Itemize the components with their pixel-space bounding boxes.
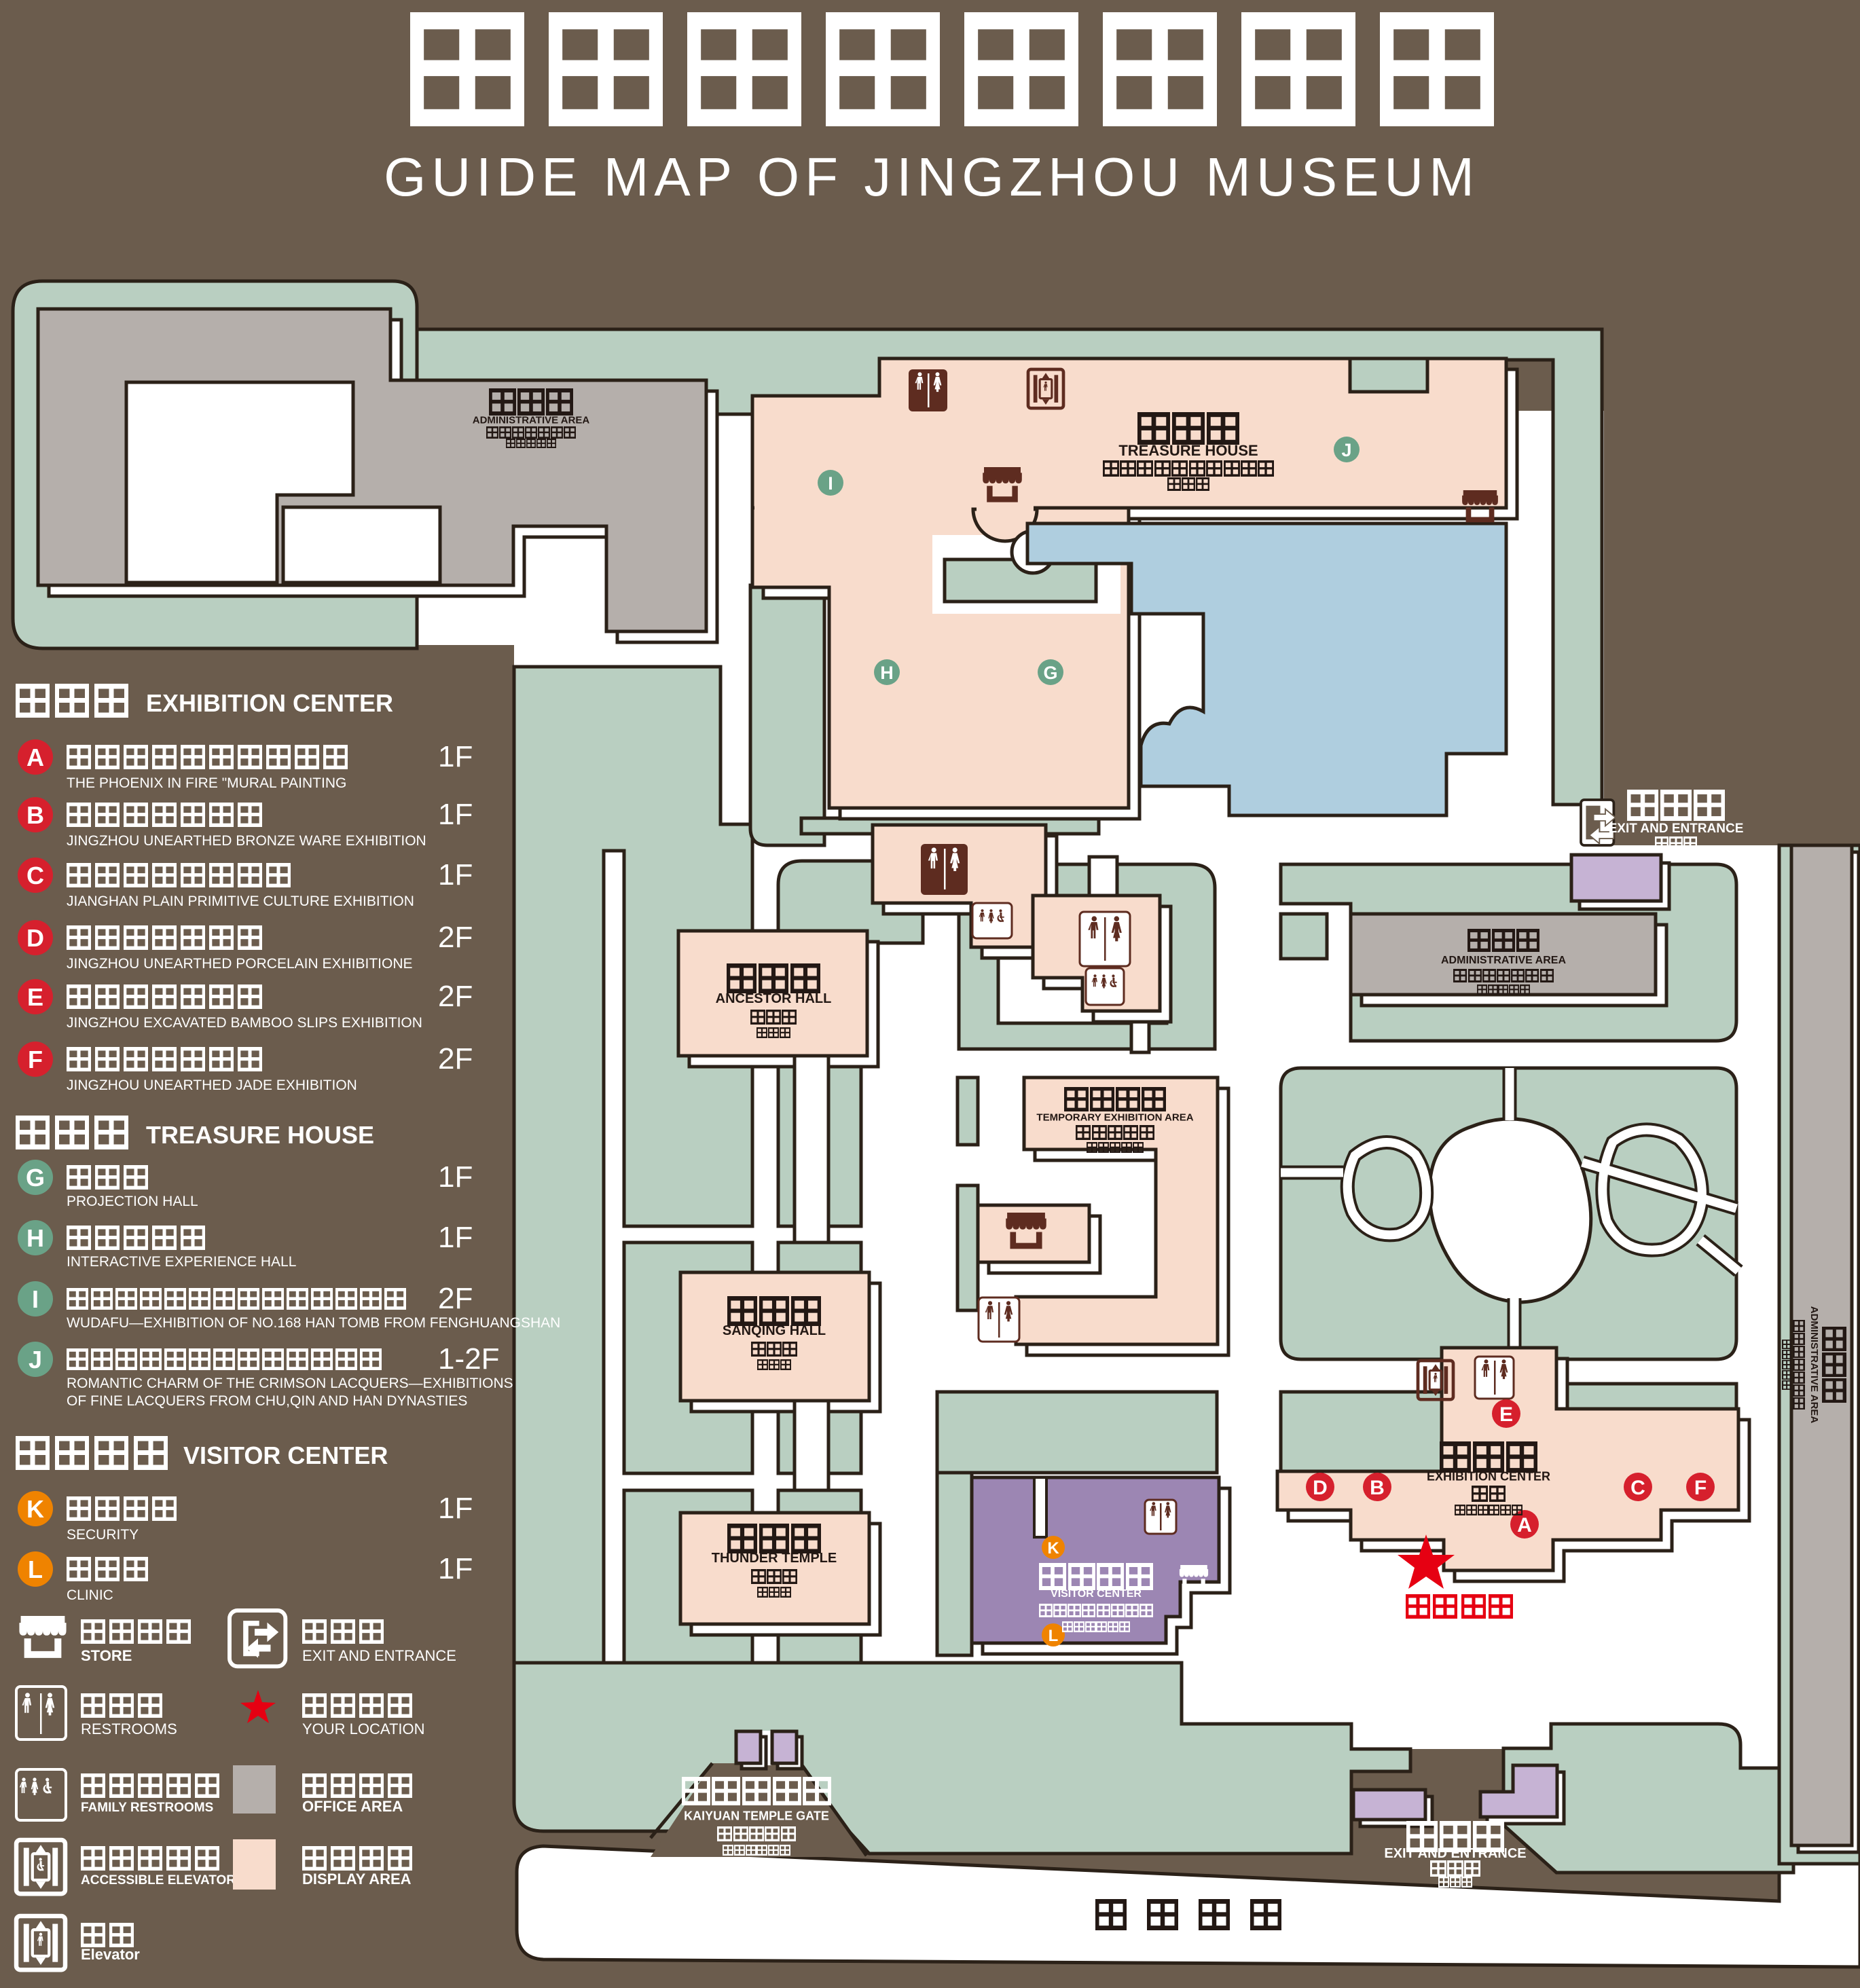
- svg-text:1F: 1F: [438, 1160, 473, 1194]
- svg-text:1F: 1F: [438, 1492, 473, 1525]
- svg-text:2F: 2F: [438, 921, 473, 954]
- svg-text:2F: 2F: [438, 980, 473, 1013]
- svg-text:D: D: [1313, 1477, 1328, 1499]
- svg-text:JINGZHOU UNEARTHED JADE EXHIBI: JINGZHOU UNEARTHED JADE EXHIBITION: [67, 1078, 357, 1093]
- svg-text:STORE: STORE: [81, 1647, 132, 1664]
- svg-text:EXIT AND ENTRANCE: EXIT AND ENTRANCE: [1384, 1846, 1526, 1861]
- svg-text:1F: 1F: [438, 1552, 473, 1585]
- svg-text:TEMPORARY EXHIBITION AREA: TEMPORARY EXHIBITION AREA: [1036, 1111, 1193, 1123]
- svg-text:VISITOR CENTER: VISITOR CENTER: [183, 1441, 388, 1469]
- svg-text:ROMANTIC CHARM OF THE CRIMSON: ROMANTIC CHARM OF THE CRIMSON LACQUERS—E…: [67, 1376, 513, 1391]
- svg-text:L: L: [28, 1556, 43, 1583]
- svg-text:THUNDER TEMPLE: THUNDER TEMPLE: [712, 1551, 837, 1566]
- svg-text:L: L: [1048, 1627, 1059, 1645]
- svg-text:J: J: [29, 1346, 42, 1374]
- svg-text:K: K: [1047, 1539, 1059, 1558]
- svg-text:YOUR LOCATION: YOUR LOCATION: [302, 1720, 425, 1737]
- svg-text:D: D: [26, 924, 44, 952]
- svg-text:I: I: [32, 1285, 39, 1313]
- svg-text:ADMINISTRATIVE AREA: ADMINISTRATIVE AREA: [1441, 955, 1566, 966]
- svg-text:DISPLAY AREA: DISPLAY AREA: [302, 1871, 412, 1888]
- svg-text:TREASURE HOUSE: TREASURE HOUSE: [1118, 442, 1258, 459]
- svg-text:KAIYUAN TEMPLE GATE: KAIYUAN TEMPLE GATE: [684, 1809, 829, 1822]
- svg-text:J: J: [1341, 440, 1351, 460]
- svg-text:ACCESSIBLE ELEVATOR: ACCESSIBLE ELEVATOR: [81, 1873, 236, 1888]
- svg-text:JINGZHOU UNEARTHED BRONZE WARE: JINGZHOU UNEARTHED BRONZE WARE EXHIBITIO…: [67, 833, 426, 849]
- svg-text:A: A: [1517, 1514, 1532, 1536]
- svg-text:C: C: [1630, 1477, 1645, 1499]
- svg-text:SECURITY: SECURITY: [67, 1527, 139, 1543]
- svg-text:TREASURE HOUSE: TREASURE HOUSE: [146, 1121, 374, 1149]
- svg-text:THE PHOENIX IN FIRE "MURAL PAI: THE PHOENIX IN FIRE "MURAL PAINTING: [67, 775, 346, 791]
- svg-text:EXHIBITION CENTER: EXHIBITION CENTER: [1427, 1469, 1550, 1483]
- svg-text:B: B: [1370, 1477, 1385, 1499]
- svg-text:OFFICE AREA: OFFICE AREA: [302, 1798, 403, 1815]
- svg-text:2F: 2F: [438, 1042, 473, 1075]
- svg-text:VISITOR CENTER: VISITOR CENTER: [1051, 1588, 1142, 1600]
- svg-text:1F: 1F: [438, 798, 473, 831]
- svg-text:F: F: [28, 1046, 43, 1073]
- svg-text:JIANGHAN PLAIN PRIMITIVE CULTU: JIANGHAN PLAIN PRIMITIVE CULTURE EXHIBIT…: [67, 894, 414, 909]
- svg-text:EXHIBITION CENTER: EXHIBITION CENTER: [146, 689, 393, 717]
- svg-text:SANQING HALL: SANQING HALL: [723, 1323, 826, 1338]
- svg-text:PROJECTION HALL: PROJECTION HALL: [67, 1194, 198, 1209]
- svg-text:1F: 1F: [438, 740, 473, 773]
- svg-text:Elevator: Elevator: [81, 1946, 140, 1963]
- svg-text:G: G: [26, 1164, 45, 1192]
- svg-text:INTERACTIVE EXPERIENCE HALL: INTERACTIVE EXPERIENCE HALL: [67, 1254, 296, 1270]
- svg-text:WUDAFU—EXHIBITION OF NO.168 HA: WUDAFU—EXHIBITION OF NO.168 HAN TOMB FRO…: [67, 1315, 560, 1331]
- svg-text:H: H: [880, 663, 894, 683]
- svg-text:A: A: [26, 743, 44, 771]
- svg-text:C: C: [26, 862, 44, 889]
- svg-text:2F: 2F: [438, 1282, 473, 1315]
- svg-text:ANCESTOR HALL: ANCESTOR HALL: [716, 991, 832, 1006]
- svg-text:E: E: [1499, 1403, 1513, 1426]
- svg-text:ADMINISTRATIVE AREA: ADMINISTRATIVE AREA: [1808, 1306, 1820, 1424]
- svg-text:1F: 1F: [438, 858, 473, 891]
- svg-text:ADMINISTRATIVE AREA: ADMINISTRATIVE AREA: [473, 414, 590, 426]
- svg-text:GUIDE MAP OF JINGZHOU MUSEUM: GUIDE MAP OF JINGZHOU MUSEUM: [384, 147, 1480, 207]
- svg-text:JINGZHOU EXCAVATED BAMBOO SLIP: JINGZHOU EXCAVATED BAMBOO SLIPS EXHIBITI…: [67, 1015, 422, 1031]
- svg-text:EXIT AND ENTRANCE: EXIT AND ENTRANCE: [302, 1647, 456, 1664]
- svg-text:H: H: [26, 1224, 44, 1252]
- svg-text:G: G: [1043, 663, 1057, 683]
- svg-text:OF FINE LACQUERS FROM CHU,QIN: OF FINE LACQUERS FROM CHU,QIN AND HAN DY…: [67, 1393, 467, 1409]
- svg-text:EXIT AND ENTRANCE: EXIT AND ENTRANCE: [1609, 822, 1744, 836]
- svg-text:1F: 1F: [438, 1221, 473, 1254]
- svg-text:F: F: [1694, 1477, 1707, 1499]
- svg-text:K: K: [26, 1495, 44, 1523]
- svg-text:RESTROOMS: RESTROOMS: [81, 1720, 177, 1737]
- svg-text:JINGZHOU UNEARTHED PORCELAIN E: JINGZHOU UNEARTHED PORCELAIN EXHIBITIONE: [67, 956, 413, 972]
- svg-text:FAMILY RESTROOMS: FAMILY RESTROOMS: [81, 1801, 213, 1815]
- svg-text:I: I: [828, 473, 833, 494]
- svg-text:1-2F: 1-2F: [438, 1342, 499, 1376]
- svg-text:CLINIC: CLINIC: [67, 1587, 113, 1603]
- svg-text:E: E: [27, 983, 43, 1011]
- svg-text:B: B: [26, 801, 44, 829]
